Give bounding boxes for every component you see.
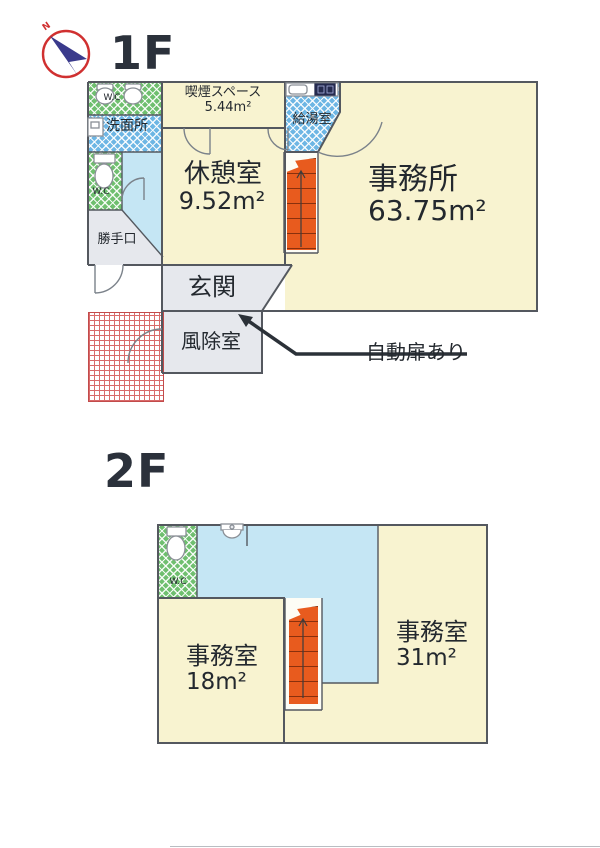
- basin-tap-icon: [230, 525, 234, 529]
- compass-icon: [43, 31, 89, 77]
- smoking-space-label: 喫煙スペース: [185, 86, 261, 100]
- entrance-label: 玄関: [188, 275, 236, 300]
- washbasin-icon: [88, 118, 103, 136]
- windbreak-label: 風除室: [181, 331, 241, 352]
- washroom-label: 洗面所: [106, 119, 148, 134]
- floor-plan-page: N 1F 2F W.C 洗面所 W.C 勝手口 喫煙スペース 5.44m² 給湯…: [0, 0, 600, 848]
- office-label: 事務所: [368, 164, 458, 196]
- wc-top-label: W.C: [103, 94, 120, 103]
- wc-2f-label: W.C: [169, 578, 186, 587]
- stairs-arrow-2f: [299, 619, 307, 698]
- office-left-label: 事務室: [186, 644, 258, 669]
- toilet-tank-icon: [167, 527, 186, 536]
- toilet-bowl-icon: [124, 88, 142, 104]
- office-area: 63.75m²: [368, 196, 487, 225]
- back-door-label: 勝手口: [97, 233, 136, 247]
- toilet-tank-icon: [94, 154, 115, 163]
- floor1-heading: 1F: [110, 26, 175, 80]
- break-room-area: 9.52m²: [179, 189, 265, 214]
- plan-linework: [0, 0, 600, 848]
- office-right-area: 31m²: [396, 646, 457, 670]
- kitchenette-label: 給湯室: [292, 113, 331, 127]
- basin-bowl-icon: [223, 530, 241, 538]
- smoking-space-area: 5.44m²: [205, 101, 252, 115]
- stairs-arrow-1f: [297, 171, 305, 247]
- auto-door-note: 自動扉あり: [366, 342, 466, 363]
- break-room-label: 休憩室: [184, 161, 262, 188]
- office-right-label: 事務室: [396, 620, 468, 645]
- floor2-heading: 2F: [104, 444, 169, 498]
- office-left-area: 18m²: [186, 670, 247, 694]
- fixtures-2f: [167, 524, 243, 560]
- toilet-bowl-icon: [95, 164, 113, 188]
- wc-lower-label: W.C: [92, 188, 109, 197]
- toilet-bowl-icon: [167, 536, 185, 560]
